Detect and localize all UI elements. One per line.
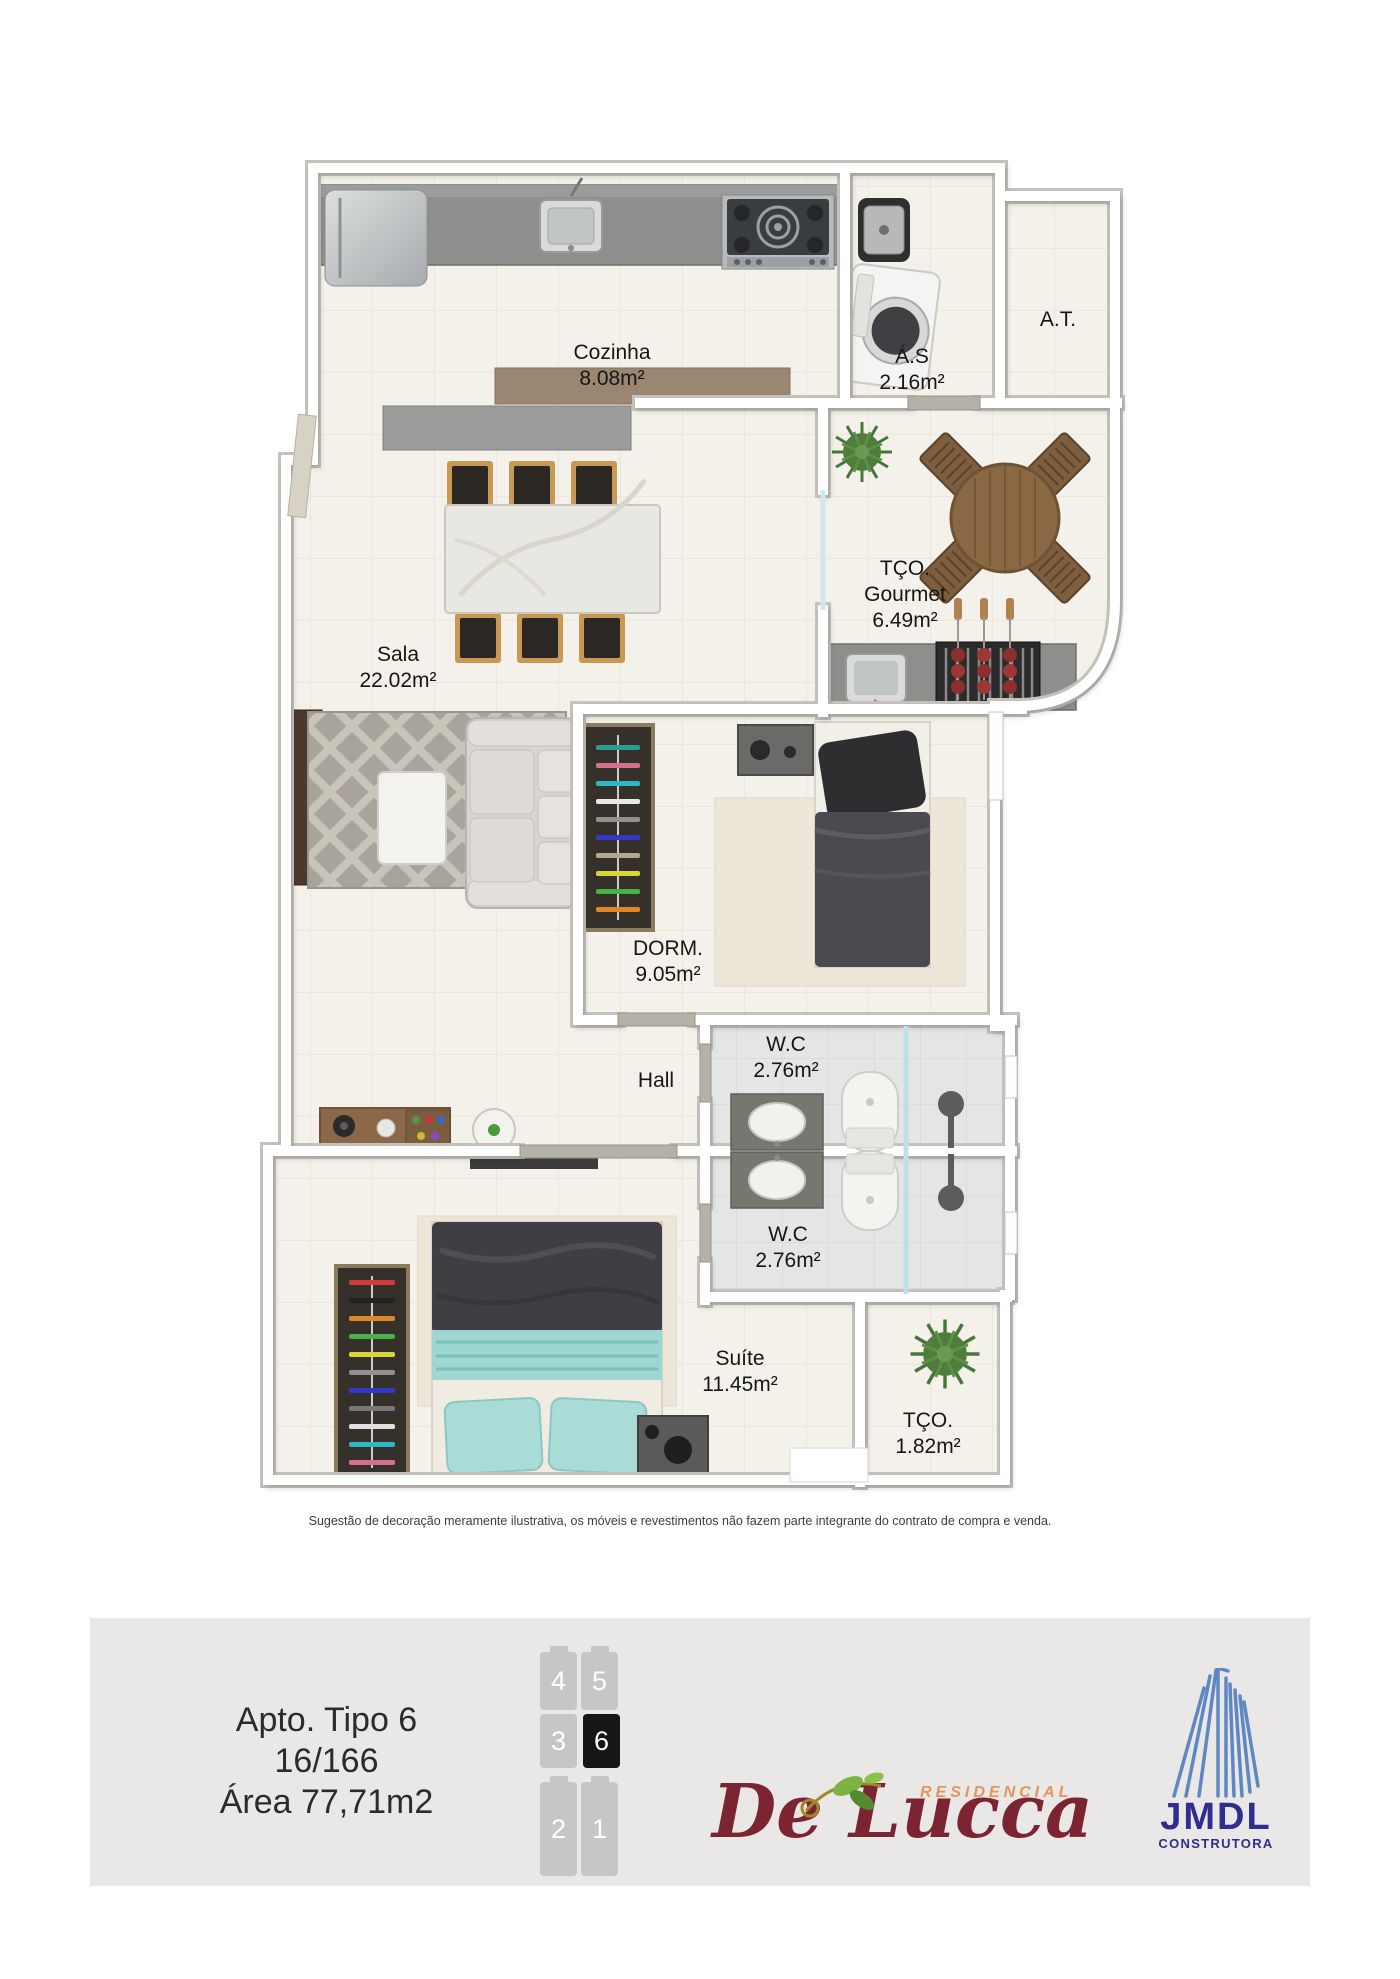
keyplan-unit-6-active: 6	[583, 1714, 620, 1768]
keyplan: 4 5 3 6 2 1	[540, 1652, 624, 1878]
room-label-hall: Hall	[638, 1068, 674, 1094]
wc-vanity	[731, 1152, 823, 1208]
building-icon	[1164, 1668, 1268, 1798]
dorm-window	[989, 712, 1003, 800]
sofa	[466, 718, 578, 908]
unit-info: Apto. Tipo 6 16/166 Área 77,71m2	[154, 1700, 499, 1823]
brand-logo: De Lucca	[712, 1772, 1142, 1852]
laundry-tub	[858, 198, 910, 262]
room-label-cozinha: Cozinha8.08m²	[573, 340, 650, 392]
kitchen-island	[383, 406, 631, 450]
room-label-sala: Sala22.02m²	[359, 642, 436, 694]
stove	[722, 195, 834, 269]
room-label-area-servico: Á.S2.16m²	[879, 344, 944, 396]
room-label-terraco-gourmet: TÇO.Gourmet6.49m²	[864, 556, 946, 634]
wc-vanity	[731, 1094, 823, 1150]
room-label-area-tecnica: A.T.	[1040, 307, 1076, 333]
room-label-dormitorio: DORM.9.05m²	[633, 936, 703, 988]
skewers	[951, 598, 1017, 700]
suite-terrace-door	[790, 1448, 868, 1482]
wc-window	[1005, 1056, 1017, 1098]
room-label-wc-suite: W.C2.76m²	[755, 1222, 820, 1274]
suite-wardrobe	[336, 1266, 408, 1476]
fridge	[325, 190, 427, 286]
toilet	[842, 1151, 898, 1230]
builder-tagline: CONSTRUTORA	[1140, 1836, 1292, 1852]
keyplan-unit-5: 5	[581, 1652, 618, 1710]
dorm-bed	[815, 722, 930, 967]
keyplan-unit-1: 1	[581, 1782, 618, 1876]
unit-area: Área 77,71m2	[154, 1782, 499, 1823]
builder-name: JMDL	[1140, 1798, 1292, 1836]
room-label-terraco: TÇO.1.82m²	[895, 1408, 960, 1460]
keyplan-unit-4: 4	[540, 1652, 577, 1710]
dorm-nightstand	[738, 725, 813, 775]
room-label-suite: Suíte11.45m²	[702, 1346, 777, 1398]
dorm-wardrobe	[583, 725, 653, 930]
page: { "plan": { "rooms": [ {"id":"cozinha","…	[0, 0, 1400, 1979]
unit-number: 16/166	[154, 1741, 499, 1782]
keyplan-unit-2: 2	[540, 1782, 577, 1876]
room-label-wc-social: W.C2.76m²	[753, 1032, 818, 1084]
dining-table	[445, 505, 660, 613]
suite-bed	[432, 1222, 662, 1480]
leaf-ornament-icon	[796, 1756, 896, 1826]
keyplan-unit-3: 3	[540, 1714, 577, 1768]
toilet	[842, 1072, 898, 1151]
suite-nightstand	[638, 1416, 708, 1478]
wc-window	[1005, 1212, 1017, 1254]
floor-plan	[0, 0, 1400, 1510]
disclaimer-text: Sugestão de decoração meramente ilustrat…	[300, 1514, 1060, 1528]
unit-type: Apto. Tipo 6	[154, 1700, 499, 1741]
coffee-table	[378, 772, 446, 864]
builder-logo: JMDL CONSTRUTORA	[1140, 1668, 1292, 1852]
